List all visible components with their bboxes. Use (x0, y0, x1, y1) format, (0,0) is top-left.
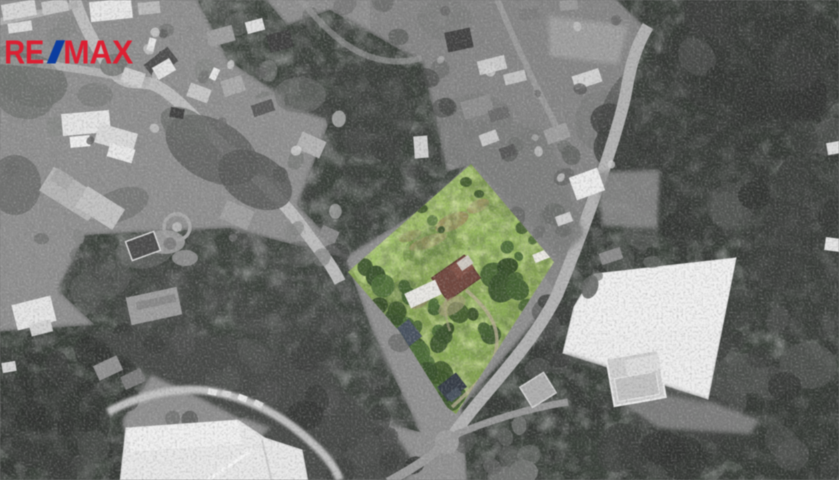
svg-text:MAX: MAX (63, 33, 133, 71)
svg-text:RE: RE (4, 34, 44, 71)
